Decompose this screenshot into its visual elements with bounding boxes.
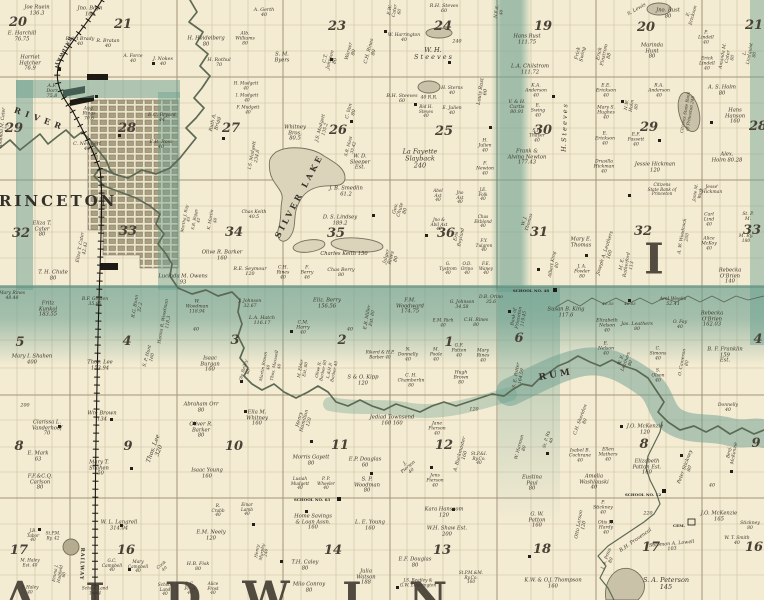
parcel-label: Eliz. Berry 156.56: [313, 298, 341, 309]
parcel-label: Citizens State Bank of Princeton: [648, 183, 677, 197]
parcel-label: J.O. McKenzie 120: [627, 424, 663, 435]
parcel-label: E.W. Cater 60: [388, 3, 405, 18]
section-number: 32: [12, 227, 30, 241]
section-number: 28: [118, 122, 136, 136]
parcel-label: B.H. Steeves 60: [386, 94, 417, 104]
parcel-label: I.S. Mudgett 234.8: [249, 141, 264, 171]
parcel-label: Jno. Boyn 166: [78, 6, 103, 17]
parcel-label: Hanna R. Woodman 118.3: [158, 299, 175, 345]
parcel-label: L.&H.P. Barber 40: [325, 360, 338, 383]
parcel-label: G.C. Campbell 40: [102, 559, 122, 573]
parcel-label: J. A. Prins 80: [602, 548, 619, 572]
parcel-label: Olive R. Barker 160: [202, 250, 243, 261]
parcel-label: Lucinda M. Owens 93: [158, 274, 207, 285]
parcel-label: L.A. Chilstrom 111.72: [511, 64, 549, 75]
parcel-label: O. Cameron 80: [679, 349, 693, 377]
parcel-label: E.B. Miller Est. 80: [364, 305, 378, 331]
parcel-label: 240: [452, 39, 461, 44]
parcel-label: St.P.&I. Ry.Co. 40: [471, 452, 487, 466]
parcel-label: K.A. Anderson 40: [525, 85, 547, 100]
parcel-label: Chas Ekblond 40: [474, 215, 492, 229]
parcel-label: M. Elder Est. 80: [297, 359, 309, 379]
parcel-label: Marinda Hunt 80: [641, 44, 663, 61]
parcel-label: E.F. Fassett 40: [628, 134, 644, 149]
section-number: 33: [743, 224, 761, 238]
parcel-label: E. Mark 63: [27, 451, 48, 462]
parcel-label: 40: [347, 327, 353, 332]
parcel-label: E. Nelson 40: [598, 343, 614, 358]
parcel-label: C.H. Rines 80: [364, 38, 381, 66]
landmark-label: SCHOOL NO. 12: [625, 493, 661, 497]
parcel-label: L. Lindquist 80: [742, 42, 760, 66]
section-number: 36: [437, 227, 455, 241]
parcel-label: J.B. Tabor 40: [27, 529, 39, 543]
section-number: 28: [749, 120, 764, 134]
parcel-label: Geo. Chute 80: [392, 201, 411, 219]
section-number: 5: [15, 336, 24, 350]
section-number: 20: [9, 16, 27, 30]
plat-map: Joe Ruein 136.3Jno. Boyn 166E. Harchill …: [0, 0, 764, 600]
section-number: 30: [534, 124, 552, 138]
parcel-label: A. Buckmaster 160: [453, 436, 472, 473]
parcel-label: La Fayette Slayback 240: [403, 148, 438, 169]
parcel-label: G. W. Patton 160: [529, 513, 546, 530]
parcel-label: Erick Lindell 40: [699, 58, 715, 73]
parcel-label: Janie M. Wark: [692, 184, 704, 203]
parcel-label: Einar Lamb 40: [241, 503, 253, 517]
parcel-label: 40 R.R.: [421, 97, 438, 102]
parcel-label: Otis H. Hardy 40: [598, 522, 614, 537]
parcel-label: Otto Larson 120: [574, 510, 589, 540]
parcel-label: A. Force 40: [123, 55, 142, 65]
section-number: 8: [14, 440, 23, 454]
landmark-label: SCHOOL NO. 63: [294, 498, 330, 502]
parcel-label: Jas. Leathers 80: [621, 322, 653, 332]
parcel-label: R.H. Steves 60: [430, 4, 458, 14]
parcel-label: Emma J. Hadfield 80: [52, 564, 69, 584]
parcel-label: Jane Pierson 40: [428, 423, 445, 438]
parcel-label: Amanda M. Cater 80: [720, 43, 739, 71]
parcel-label: 220: [643, 511, 652, 516]
parcel-label: 40: [709, 483, 715, 488]
section-number: 9: [751, 437, 760, 451]
section-number: 2: [337, 334, 346, 348]
parcel-label: A. S. Holm 80: [708, 85, 736, 96]
parcel-label: N.W. Holm 80: [625, 99, 642, 114]
parcel-label: Morris Gayett 80: [293, 455, 330, 466]
parcel-label: Mary S. Hughes 40: [597, 107, 615, 122]
parcel-label: W. Harrington 40: [388, 34, 420, 44]
parcel-label: Hugh Brown 80: [454, 372, 469, 387]
parcel-label: 40.63: [624, 302, 635, 306]
parcel-label: C. Van 80: [345, 103, 359, 121]
section-number: 6: [514, 332, 523, 346]
parcel-label: Stickney 80: [740, 522, 760, 532]
parcel-label: M. Poole 40: [430, 349, 442, 364]
parcel-label: R.G. Bunn 32.2: [132, 295, 146, 319]
landmark-label: SCHOOL NO. 48: [513, 289, 549, 293]
parcel-label: 40: [193, 327, 199, 332]
big-letter: A: [4, 574, 37, 600]
parcel-label: F.M. Woodward 174.75: [396, 299, 424, 316]
section-number: 17: [642, 541, 660, 555]
section-number: 4: [753, 333, 762, 347]
big-letter: N: [409, 575, 447, 600]
parcel-label: F.E. Waney 40: [479, 262, 493, 276]
parcel-label: Lusiah Mudgett 40: [291, 477, 309, 491]
parcel-label: Rebecka O'Brien 162.03: [701, 312, 724, 329]
parcel-label: D. S. Lindsey 189.2: [323, 215, 357, 226]
section-number: 23: [328, 20, 346, 34]
section-number: 12: [435, 439, 453, 453]
parcel-label: Amelia Washlauski 40: [579, 475, 609, 492]
parcel-label: S.R. Biggs 42: [191, 209, 203, 231]
parcel-label: Ruth A. Brigg: [209, 113, 223, 133]
parcel-label: Aug. Rings 70.6: [83, 108, 96, 123]
big-letter: I: [644, 236, 664, 281]
parcel-label: Warner 80: [345, 42, 360, 62]
parcel-label: Mary Campbell 40: [128, 560, 148, 574]
section-number: 17: [10, 544, 28, 558]
parcel-label: J. B. Smedlin 61.2: [329, 186, 363, 197]
parcel-label: E. Julien 40: [442, 107, 461, 117]
parcel-label: E.B. Ross 40: [149, 140, 172, 150]
parcel-label: P. Lindell 40: [698, 32, 714, 47]
parcel-label: J. Nokes 40: [153, 57, 173, 67]
parcel-label: Mary I. Shahen 400: [12, 354, 53, 365]
parcel-label: Henry Hamilton 120: [295, 408, 316, 434]
parcel-label: S. Lewis: [627, 3, 647, 18]
section-number: 25: [435, 125, 453, 139]
parcel-label: Kara Hanscom 120: [425, 507, 464, 518]
parcel-label: Jessie Hickman 120: [635, 162, 675, 173]
parcel-label: R. Crabb 40: [211, 504, 224, 518]
parcel-label: O. Fay 40: [673, 321, 687, 331]
parcel-label: Wm Brown 134: [87, 411, 116, 422]
parcel-label: Mary T. Shahen 150: [89, 461, 109, 478]
parcel-label: S & O. Kipp 120: [348, 375, 379, 386]
parcel-label: Thos. Lee 153.94: [87, 360, 112, 371]
parcel-label: Aml Weeks 52.41: [660, 297, 687, 307]
parcel-label: Ole Bailey 60: [239, 359, 253, 382]
parcel-label: P. Stickney 40: [593, 502, 613, 517]
parcel-label: Chas Keith 40.5: [242, 211, 267, 221]
parcel-label: F.F.&C.Q. Carlson 80: [28, 475, 53, 492]
parcel-label: Joe Ruein 136.3: [24, 5, 49, 16]
parcel-label: Ellen Mathers 40: [598, 449, 617, 464]
parcel-label: Drusilla Hickman 40: [594, 161, 614, 176]
parcel-label: G.F. Patton 40: [452, 345, 467, 360]
place-label: RUM: [538, 368, 573, 384]
parcel-label: J. Johnson 32.67: [239, 300, 262, 310]
parcel-label: I. Mudgett 40: [236, 93, 259, 102]
parcel-label: W. Harmon 80: [515, 435, 531, 462]
parcel-label: Susan B. King 117.6: [548, 307, 585, 318]
parcel-label: Whitney Bros. 80.5: [284, 126, 306, 143]
parcel-label: W. L. Langrell 314.04: [101, 520, 138, 531]
parcel-label: Abel Axt 40: [433, 189, 443, 203]
parcel-label: Elizabeth Patton Est. 160: [633, 460, 662, 477]
parcel-label: B.F. Golden 35.86: [82, 298, 108, 308]
parcel-label: Alb. Williams 80: [235, 33, 255, 48]
parcel-label: 120: [469, 407, 478, 412]
section-number: 3: [230, 334, 239, 348]
parcel-label: E.F. Douglas 80: [399, 557, 432, 568]
parcel-label: R. Bratan 40: [96, 39, 119, 49]
parcel-label: H. Heidelberg 80: [187, 36, 224, 47]
parcel-label: F. Berry 46: [301, 267, 314, 282]
parcel-label: W. E. Leathers 80: [617, 350, 638, 374]
parcel-label: G. Johnson 34.58: [450, 301, 475, 311]
parcel-label: Mary Rines 48.48: [0, 292, 25, 302]
parcel-label: E. Erickson 40: [595, 133, 615, 148]
parcel-label: E.E. Erickson 40: [596, 85, 616, 100]
parcel-label: Elizabeth Nelson 40: [596, 320, 617, 335]
parcel-label: E. Harchill 76.75: [8, 31, 36, 42]
parcel-label: Frank & Alvina Newton 177.43: [508, 150, 547, 167]
parcel-label: Erik Boylund: [453, 227, 466, 247]
parcel-label: K. Martin 40: [207, 209, 219, 231]
parcel-label: H.B. Fisk 80: [187, 562, 210, 572]
section-number: 26: [329, 124, 347, 138]
parcel-label: Charles Keith 150: [320, 252, 367, 258]
parcel-label: Ella M. Whitney 160: [246, 411, 268, 428]
parcel-label: Carl Lind 40: [704, 214, 714, 229]
parcel-label: H. S t e e v e s: [561, 104, 570, 152]
section-number: 21: [114, 18, 132, 32]
parcel-label: T.H. Caley 80: [292, 560, 319, 571]
parcel-label: V. & H. Curtis 80.91: [508, 100, 525, 116]
parcel-label: S. E. Potter 164.59: [513, 362, 527, 389]
parcel-label: S. M. Byers: [275, 52, 290, 63]
parcel-label: C. Simons 40: [650, 348, 667, 363]
place-label: RAILWAY: [78, 547, 85, 580]
parcel-label: Eustina Paul 80: [522, 476, 542, 493]
parcel-label: R.A. Anderson 40: [648, 85, 670, 100]
parcel-label: R.E. Seymour 120: [233, 267, 266, 277]
section-number: 16: [745, 541, 763, 555]
parcel-label: C.T. Johnson 80: [321, 49, 341, 72]
section-number: 1: [444, 336, 453, 350]
parcel-label: A. Gerth 40: [254, 8, 275, 18]
parcel-label: Alice McKoy 40: [701, 238, 717, 253]
parcel-label: S. P. Hunt 160: [143, 345, 158, 369]
section-number: 8: [639, 438, 648, 452]
parcel-label: Benj. McKenzie: [726, 437, 741, 469]
parcel-label: Abraham Orr 80: [184, 402, 219, 413]
parcel-label: Louis Rust 60: [477, 78, 491, 106]
parcel-label: Harriet Hatcher 76.9: [19, 56, 41, 73]
parcel-label: H. Mudgett 40: [234, 81, 259, 90]
parcel-label: Oliver R. Barker 80: [189, 423, 212, 440]
parcel-label: J. Pierson 40: [398, 457, 421, 479]
parcel-label: J. A. Fowler 80: [574, 266, 590, 281]
section-number: 11: [331, 439, 349, 453]
parcel-label: Eliza T. Cater 42.42: [77, 232, 92, 264]
parcel-label: G. Tystrom 40: [439, 262, 456, 276]
section-number: 27: [222, 122, 240, 136]
parcel-label: N. Donnelly 40: [398, 349, 418, 364]
parcel-label: B. F. Franklin 159 Est.: [707, 348, 743, 365]
parcel-label: Albert King 80: [549, 251, 563, 278]
section-number: 33: [119, 225, 137, 239]
parcel-label: W. Woodman 118.94: [186, 301, 208, 316]
parcel-label: Julger Rines 80: [383, 249, 402, 267]
parcel-label: Frick Swing: [574, 46, 587, 63]
parcel-label: Jesse' Hickman: [702, 186, 722, 196]
parcel-label: St.P.M. Ry. 42: [46, 531, 61, 540]
parcel-label: W. H. S t e e v e s: [414, 47, 452, 61]
parcel-label: M. E. Rutherford 113: [619, 251, 638, 278]
parcel-label: Mary E. Thomas: [571, 237, 592, 248]
parcel-label: Henry Murphy 240: [254, 543, 270, 562]
parcel-label: Clarissa L. Vanderhoof 70: [32, 421, 62, 438]
section-number: 29: [5, 122, 23, 136]
parcel-label: H. Sterns 40: [441, 87, 463, 97]
parcel-label: C.H. Rines 40: [277, 267, 290, 282]
parcel-label: C.H. Rines 80: [464, 319, 488, 329]
section-number: 19: [534, 20, 552, 34]
place-label: PRINCETON: [0, 193, 117, 209]
section-number: 21: [745, 19, 763, 33]
parcel-label: St.P.M.&M. Ry.Co. 160: [459, 571, 483, 585]
parcel-label: E. Swing 40: [531, 105, 545, 120]
big-letter: L: [85, 576, 115, 600]
section-number: 10: [225, 440, 243, 454]
parcel-label: S. P. Woodman 80: [354, 478, 380, 495]
parcel-label: H. Julien 40: [478, 140, 491, 155]
section-number: 16: [117, 544, 135, 558]
parcel-label: E.M. Rich 40: [433, 318, 454, 327]
parcel-label: Milo Conroy 80: [293, 582, 325, 593]
parcel-label: S. A. Peterson 145: [643, 577, 689, 591]
parcel-label: C.H. Sheridan 80: [574, 404, 594, 438]
parcel-label: Bank of Princeton 119.45: [511, 306, 529, 330]
parcel-label: F. Newton 40: [476, 163, 494, 178]
parcel-label: L. E. Young 160: [355, 520, 385, 531]
parcel-label: Rikerd & H.P. Barber 40: [366, 350, 395, 359]
parcel-label: J.E. Folk 40: [478, 188, 487, 202]
parcel-label: A.F. Dorr 75.8: [46, 84, 57, 100]
parcel-label: 40.55: [602, 302, 613, 306]
parcel-label: Citizens State Bank of Princeton 248: [680, 92, 696, 135]
parcel-label: C. H. Chamberlin 80: [398, 375, 425, 390]
parcel-label: F. Mudgett 40: [236, 105, 259, 114]
map-label-layer: Joe Ruein 136.3Jno. Boyn 166E. Harchill …: [0, 0, 764, 600]
parcel-label: E. Erickson: [685, 4, 700, 26]
parcel-label: E.C. Bryant 44: [148, 113, 176, 123]
section-number: 14: [324, 544, 342, 558]
parcel-label: C.M. Harry 40: [296, 322, 309, 337]
parcel-label: Isaac Burgan 160: [200, 357, 219, 374]
parcel-label: O.D. Orino 40: [461, 262, 473, 276]
parcel-label: E.P. Douglas 60: [349, 457, 382, 468]
parcel-label: Hans Rust 111.75: [513, 34, 540, 45]
section-number: 29: [640, 121, 658, 135]
section-number: 20: [637, 21, 655, 35]
parcel-label: Eliza T. Cater 80: [33, 222, 52, 239]
parcel-label: Isabel B. Cochrane 40: [569, 450, 591, 465]
section-number: 18: [533, 543, 551, 557]
parcel-label: P. P. Wheeler 40: [317, 477, 335, 491]
parcel-label: Jno Axt 40: [456, 191, 463, 205]
parcel-label: H. Rothul 70: [207, 58, 230, 68]
parcel-label: Jno. Rust 80: [656, 8, 680, 19]
landmark-label: CEM.: [673, 524, 685, 528]
parcel-label: Peter Stickney 80: [677, 450, 699, 487]
parcel-label: L.A. Hatch 116.17: [249, 316, 275, 326]
parcel-label: Donnelly 40: [718, 404, 738, 414]
parcel-label: T. H. Chute 80: [38, 270, 68, 281]
parcel-label: M. Haley Est. 40: [20, 558, 39, 567]
parcel-label: Fritz Kunkol 183.55: [39, 302, 57, 319]
place-label: RAILWAY: [52, 35, 72, 67]
parcel-label: Jens Pierson 40: [426, 475, 443, 490]
parcel-label: C. Newbert 40: [73, 142, 101, 152]
parcel-label: Thos. Lee 320: [146, 434, 168, 466]
parcel-label: Alice Frost 40: [207, 582, 218, 596]
section-number: 9: [123, 440, 132, 454]
section-number: 34: [225, 226, 243, 240]
parcel-label: J.O. McKenzie 165: [701, 511, 737, 522]
parcel-label: F.Y. Tulgren 40: [476, 239, 493, 253]
parcel-label: Jediad Townsend 160 160: [370, 415, 415, 426]
section-number: 13: [433, 544, 451, 558]
parcel-label: 200: [20, 403, 29, 408]
parcel-label: Bid H. Steves 40: [419, 105, 433, 119]
big-letter: I: [342, 575, 362, 600]
parcel-label: D.B. Orino 35.6: [479, 296, 503, 306]
parcel-label: A. W. Woodcock 200: [678, 218, 694, 255]
parcel-label: Mary Rines 40: [477, 350, 490, 365]
parcel-label: St. P. Ry. 40: [542, 430, 555, 450]
parcel-label: Erick Finstrom 88: [595, 43, 615, 68]
parcel-label: N.E.S. 40: [493, 5, 504, 20]
parcel-label: Hans Hanson 160: [721, 109, 750, 126]
parcel-label: E.M. Neely 120: [196, 530, 225, 541]
parcel-label: K.W. & O.J. Thompson 160: [524, 578, 581, 589]
big-letter: D: [165, 575, 201, 600]
big-letter: W: [242, 574, 289, 600]
parcel-label: Home Savings & Loan Assn. 160: [294, 515, 332, 532]
parcel-label: W.H. Shaw Est. 200: [427, 526, 467, 537]
section-number: 35: [327, 227, 345, 241]
parcel-label: Rebecka O'Brien 140: [713, 269, 747, 286]
parcel-label: Joseph A. Leathers 160: [596, 231, 620, 278]
section-number: 31: [530, 226, 548, 240]
parcel-label: S. Olson 40: [651, 370, 664, 385]
place-label: SILVER LAKE: [273, 153, 325, 240]
parcel-label: Cook 40: [156, 560, 170, 574]
parcel-label: St. P. M.: [740, 213, 756, 223]
parcel-label: Isaac Young 160: [191, 468, 223, 479]
parcel-label: Alex. Holm 80.28: [712, 152, 743, 163]
parcel-label: Chas Berry 80: [327, 268, 354, 278]
section-number: 24: [434, 20, 452, 34]
section-number: 4: [122, 335, 131, 349]
